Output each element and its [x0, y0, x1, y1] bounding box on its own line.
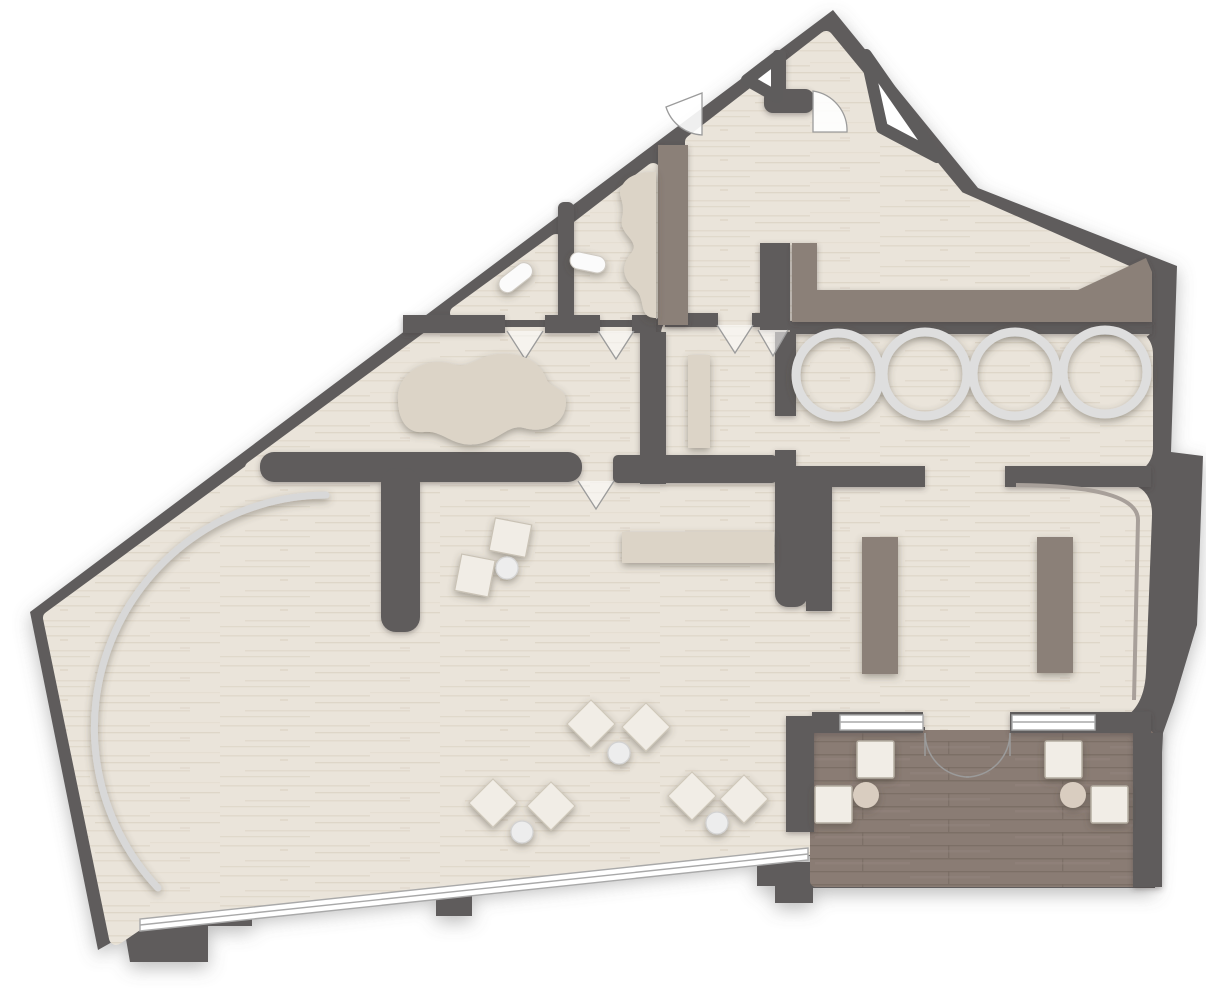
- wall-column-t2: [775, 468, 808, 607]
- wall-hall-top-2: [613, 455, 777, 483]
- wall-deck-west: [786, 716, 814, 832]
- lounge-bench-left: [862, 537, 898, 674]
- wall-column-t1: [381, 468, 420, 632]
- wall-below-wcs: [403, 315, 505, 333]
- seat-tilted-1: [489, 518, 532, 557]
- small-bench-room: [688, 355, 710, 448]
- long-bench-hall: [622, 532, 774, 563]
- bridge-bench-to-tubs: [768, 416, 800, 450]
- side-table-1: [496, 557, 518, 579]
- bridge-tubs-to-lounge: [925, 463, 1005, 491]
- wall-deck-east: [1133, 733, 1162, 887]
- lounge-bench-right: [1037, 537, 1073, 673]
- wall-hall-top-stub: [260, 452, 582, 482]
- wall-lounge-left: [806, 487, 832, 611]
- deck-armchair-4: [1091, 786, 1128, 823]
- wall-attic-door-pier: [760, 243, 790, 330]
- deck-table-right: [1060, 782, 1086, 808]
- tall-cabinet-bar: [658, 145, 688, 325]
- wall-tubs-left-lower: [775, 450, 796, 482]
- seat-tilted-2: [455, 554, 495, 597]
- floor-plan-canvas: [0, 0, 1206, 992]
- lounger-table-2: [511, 821, 533, 843]
- room-tubs: [795, 334, 1146, 468]
- deck-armchair-1: [857, 741, 894, 778]
- deck-table-left: [853, 782, 879, 808]
- door-swing-attic-left: [666, 93, 702, 135]
- lounger-table-1: [608, 742, 630, 764]
- wall-tubs-bottom-1: [793, 466, 925, 487]
- lounger-table-3: [706, 812, 728, 834]
- floor-plan-svg: [0, 0, 1206, 992]
- wall-between-wcs: [558, 202, 574, 332]
- room-bench: [668, 322, 774, 466]
- deck-armchair-2: [815, 786, 852, 823]
- wall-below-wcs-2: [545, 315, 600, 333]
- deck-armchair-3: [1045, 741, 1082, 778]
